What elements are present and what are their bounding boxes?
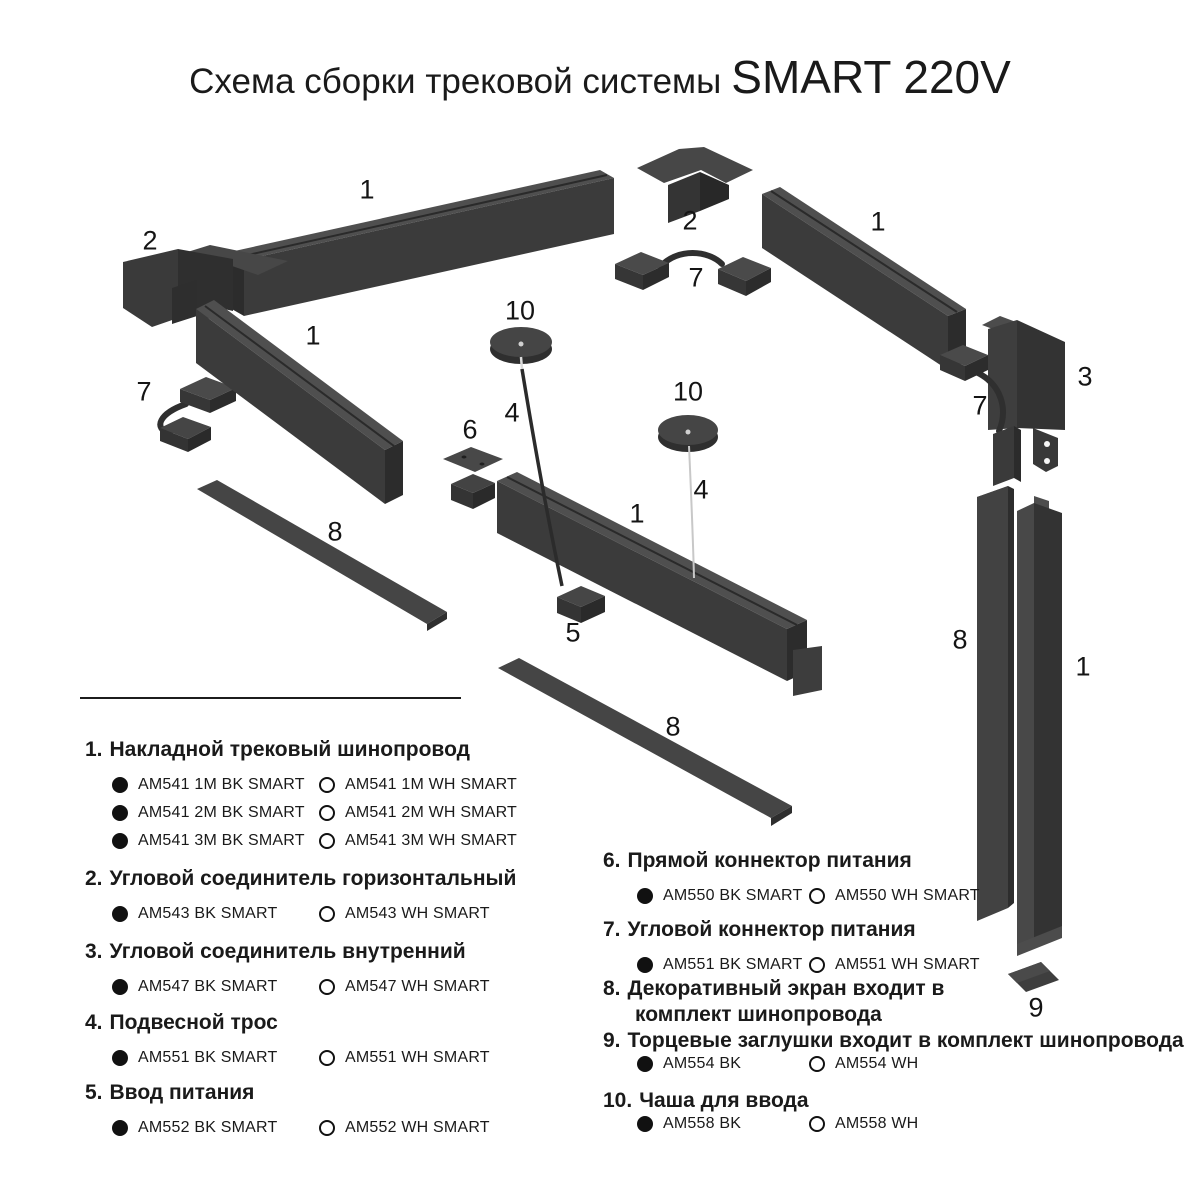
part-label: 1 [305, 323, 320, 350]
part-track-right [762, 187, 966, 370]
legend-heading: 3.Угловой соединитель внутренний [85, 939, 526, 965]
legend-title: Накладной трековый шинопровод [110, 738, 470, 761]
legend-title: Подвесной трос [110, 1011, 278, 1034]
part-code: AM541 3M WH SMART [345, 832, 517, 850]
legend-row: AM551 BK SMART AM551 WH SMART [637, 951, 981, 979]
legend-number: 8. [603, 977, 621, 1000]
part-code: AM541 3M BK SMART [138, 832, 305, 850]
open-dot-icon [809, 957, 825, 973]
filled-dot-icon [112, 833, 128, 849]
part-code: AM552 WH SMART [345, 1119, 490, 1137]
part-code: AM541 2M WH SMART [345, 804, 517, 822]
part-code: AM541 1M BK SMART [138, 776, 305, 794]
variant-white: AM552 WH SMART [319, 1119, 526, 1137]
filled-dot-icon [112, 1050, 128, 1066]
legend-section-7: 7.Угловой коннектор питания AM551 BK SMA… [603, 917, 981, 979]
filled-dot-icon [637, 957, 653, 973]
variant-white: AM541 3M WH SMART [319, 832, 526, 850]
legend-number: 9. [603, 1029, 621, 1052]
legend-number: 7. [603, 918, 621, 941]
part-label: 6 [462, 417, 477, 444]
legend-number: 4. [85, 1011, 103, 1034]
legend-row: AM550 BK SMART AM550 WH SMART [637, 882, 981, 910]
filled-dot-icon [112, 1120, 128, 1136]
part-code: AM550 WH SMART [835, 887, 980, 905]
variant-white: AM543 WH SMART [319, 905, 526, 923]
variant-white: AM541 2M WH SMART [319, 804, 526, 822]
legend-title: Чаша для ввода [639, 1089, 808, 1112]
legend-title: Прямой коннектор питания [628, 849, 912, 872]
open-dot-icon [319, 1050, 335, 1066]
filled-dot-icon [112, 906, 128, 922]
legend-heading: 1.Накладной трековый шинопровод [85, 737, 526, 763]
variant-white: AM547 WH SMART [319, 978, 526, 996]
filled-dot-icon [112, 805, 128, 821]
legend-number: 10. [603, 1089, 632, 1112]
part-code: AM541 2M BK SMART [138, 804, 305, 822]
part-label: 4 [693, 477, 708, 504]
legend-section-5: 5.Ввод питания AM552 BK SMART AM552 WH S… [85, 1080, 526, 1142]
variant-black: AM541 2M BK SMART [112, 804, 319, 822]
legend-row: AM541 2M BK SMART AM541 2M WH SMART [112, 799, 526, 827]
legend-section-8: 8.Декоративный экран входит вкомплект ши… [603, 976, 944, 1036]
part-label: 1 [1075, 654, 1090, 681]
filled-dot-icon [637, 888, 653, 904]
variant-black: AM547 BK SMART [112, 978, 319, 996]
legend-row: AM552 BK SMART AM552 WH SMART [112, 1114, 526, 1142]
legend-divider [80, 697, 461, 699]
legend-row: AM547 BK SMART AM547 WH SMART [112, 973, 526, 1001]
part-corner-connector-left [160, 377, 236, 452]
legend-title: Угловой коннектор питания [628, 918, 916, 941]
open-dot-icon [319, 1120, 335, 1136]
variant-black: AM551 BK SMART [637, 956, 809, 974]
legend-row: AM543 BK SMART AM543 WH SMART [112, 900, 526, 928]
open-dot-icon [319, 805, 335, 821]
part-power-feed [557, 586, 605, 623]
legend-section-10: 10.Чаша для ввода AM558 BK AM558 WH [603, 1088, 981, 1138]
part-code: AM558 WH [835, 1115, 918, 1133]
part-code: AM551 BK SMART [138, 1049, 277, 1067]
part-label: 1 [870, 209, 885, 236]
part-code: AM543 WH SMART [345, 905, 490, 923]
legend-heading: 6.Прямой коннектор питания [603, 848, 981, 874]
part-end-cap-center [793, 646, 822, 696]
variant-black: AM541 1M BK SMART [112, 776, 319, 794]
legend-heading: 8.Декоративный экран входит вкомплект ши… [603, 976, 944, 1028]
legend-section-3: 3.Угловой соединитель внутренний AM547 B… [85, 939, 526, 1001]
legend-row: AM551 BK SMART AM551 WH SMART [112, 1044, 526, 1072]
legend-heading: 4.Подвесной трос [85, 1010, 526, 1036]
legend-heading: 9.Торцевые заглушки входит в комплект ши… [603, 1028, 1184, 1054]
part-code: AM551 WH SMART [835, 956, 980, 974]
open-dot-icon [809, 1056, 825, 1072]
part-suspension-cable-right [689, 446, 694, 578]
variant-white: AM558 WH [809, 1115, 981, 1133]
legend-section-6: 6.Прямой коннектор питания AM550 BK SMAR… [603, 848, 981, 910]
legend-number: 5. [85, 1081, 103, 1104]
filled-dot-icon [112, 777, 128, 793]
part-label: 7 [136, 379, 151, 406]
variant-black: AM551 BK SMART [112, 1049, 319, 1067]
legend-heading: 7.Угловой коннектор питания [603, 917, 981, 943]
variant-white: AM541 1M WH SMART [319, 776, 526, 794]
part-label: 8 [952, 627, 967, 654]
legend-number: 3. [85, 940, 103, 963]
variant-white: AM551 WH SMART [809, 956, 981, 974]
variant-white: AM551 WH SMART [319, 1049, 526, 1067]
part-label: 1 [359, 177, 374, 204]
part-label: 10 [505, 298, 535, 325]
part-screen-left [197, 480, 447, 631]
part-label: 2 [682, 208, 697, 235]
filled-dot-icon [637, 1056, 653, 1072]
part-label: 7 [688, 265, 703, 292]
part-straight-connector [443, 447, 503, 509]
legend-section-1: 1.Накладной трековый шинопровод AM541 1M… [85, 737, 526, 855]
part-end-cap-bottom [1008, 962, 1059, 992]
part-code: AM543 BK SMART [138, 905, 277, 923]
legend-number: 6. [603, 849, 621, 872]
legend-row: AM554 BK AM554 WH [637, 1050, 1184, 1078]
legend-row: AM541 3M BK SMART AM541 3M WH SMART [112, 827, 526, 855]
legend-row: AM541 1M BK SMART AM541 1M WH SMART [112, 771, 526, 799]
legend-heading: 5.Ввод питания [85, 1080, 526, 1106]
variant-black: AM552 BK SMART [112, 1119, 319, 1137]
part-label: 5 [565, 620, 580, 647]
legend-row: AM558 BK AM558 WH [637, 1110, 981, 1138]
part-label: 2 [142, 228, 157, 255]
variant-black: AM543 BK SMART [112, 905, 319, 923]
legend-title: Торцевые заглушки входит в комплект шино… [628, 1029, 1184, 1052]
open-dot-icon [319, 833, 335, 849]
variant-white: AM550 WH SMART [809, 887, 981, 905]
part-code: AM551 BK SMART [663, 956, 802, 974]
part-code: AM558 BK [663, 1115, 741, 1133]
legend-number: 2. [85, 867, 103, 890]
part-label: 7 [972, 393, 987, 420]
part-label: 9 [1028, 995, 1043, 1022]
part-canopy-left [490, 327, 552, 369]
part-code: AM547 BK SMART [138, 978, 277, 996]
variant-black: AM558 BK [637, 1115, 809, 1133]
legend-title: Декоративный экран входит в [628, 977, 945, 1000]
part-track-vertical [1017, 496, 1062, 956]
part-label: 4 [504, 400, 519, 427]
open-dot-icon [319, 777, 335, 793]
legend-section-4: 4.Подвесной трос AM551 BK SMART AM551 WH… [85, 1010, 526, 1072]
legend-title: Угловой соединитель внутренний [110, 940, 466, 963]
open-dot-icon [319, 906, 335, 922]
assembly-scheme-page: Схема сборки трековой системыSMART 220V [0, 0, 1200, 1200]
legend-title: Угловой соединитель горизонтальный [110, 867, 517, 890]
legend-heading: 2.Угловой соединитель горизонтальный [85, 866, 526, 892]
part-code: AM551 WH SMART [345, 1049, 490, 1067]
part-code: AM554 WH [835, 1055, 918, 1073]
part-label: 10 [673, 379, 703, 406]
legend-number: 1. [85, 738, 103, 761]
variant-black: AM541 3M BK SMART [112, 832, 319, 850]
legend-title-line2: комплект шинопровода [635, 1003, 882, 1026]
open-dot-icon [809, 1116, 825, 1132]
open-dot-icon [809, 888, 825, 904]
variant-white: AM554 WH [809, 1055, 981, 1073]
legend-section-2: 2.Угловой соединитель горизонтальный AM5… [85, 866, 526, 928]
part-label: 8 [327, 519, 342, 546]
part-label: 3 [1077, 364, 1092, 391]
filled-dot-icon [112, 979, 128, 995]
part-code: AM552 BK SMART [138, 1119, 277, 1137]
part-label: 1 [629, 501, 644, 528]
variant-black: AM550 BK SMART [637, 887, 809, 905]
variant-black: AM554 BK [637, 1055, 809, 1073]
part-screen-right [977, 486, 1014, 921]
part-code: AM550 BK SMART [663, 887, 802, 905]
part-track-top [230, 170, 614, 316]
part-code: AM541 1M WH SMART [345, 776, 517, 794]
part-track-center [497, 472, 807, 681]
legend-title: Ввод питания [110, 1081, 255, 1104]
part-code: AM547 WH SMART [345, 978, 490, 996]
part-code: AM554 BK [663, 1055, 741, 1073]
part-canopy-right [658, 415, 718, 452]
part-label: 8 [665, 714, 680, 741]
filled-dot-icon [637, 1116, 653, 1132]
open-dot-icon [319, 979, 335, 995]
legend-section-9: 9.Торцевые заглушки входит в комплект ши… [603, 1028, 1184, 1078]
part-screen-bottom [498, 658, 792, 826]
